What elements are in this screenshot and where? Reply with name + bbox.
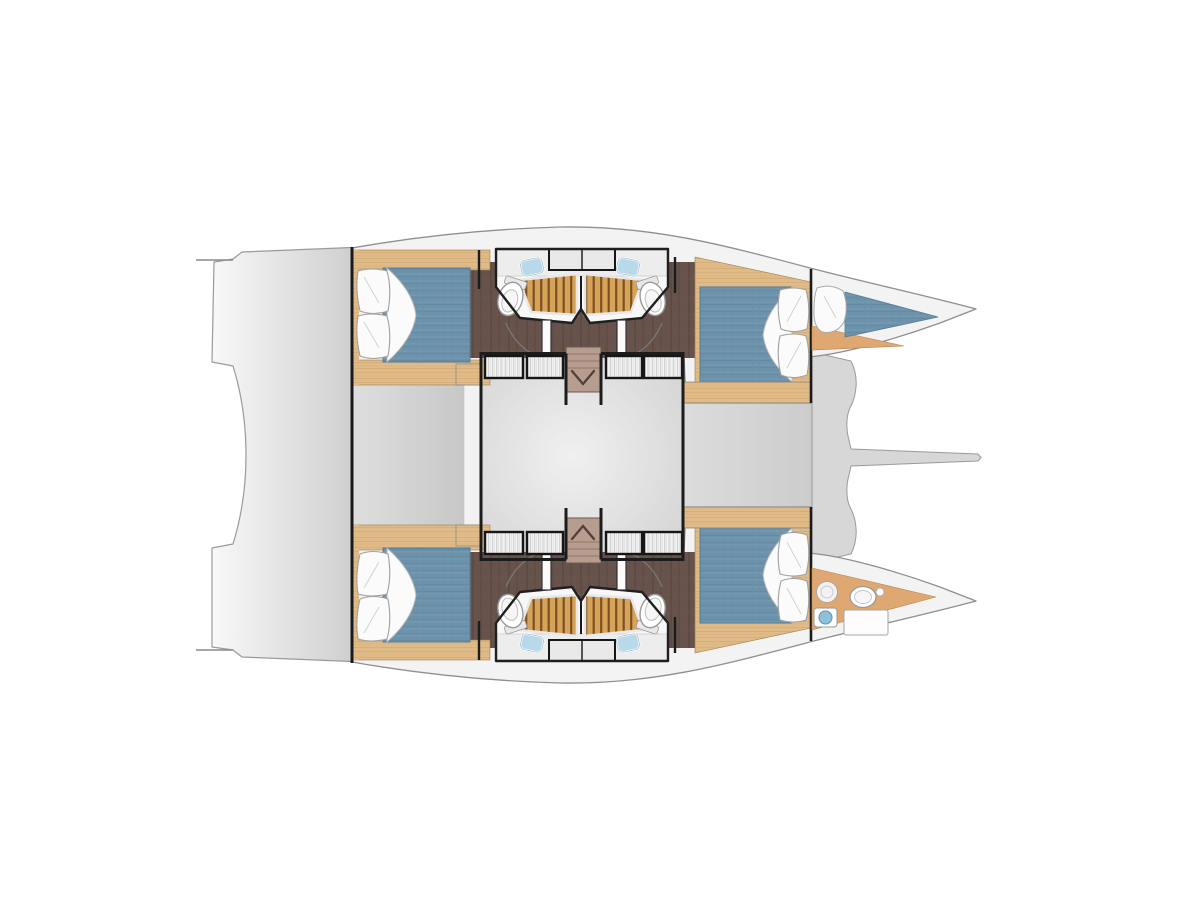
saloon-step-wood xyxy=(456,364,481,385)
aft-bed-pillow xyxy=(357,314,390,359)
crew-basin xyxy=(814,608,837,627)
aft-deck xyxy=(196,248,352,662)
starboard-hull-interior xyxy=(353,507,811,661)
aft-cabin-shelf-top xyxy=(353,250,490,270)
washbasin xyxy=(616,257,641,277)
forward-cabin xyxy=(695,257,811,402)
aft-bed-pillow xyxy=(357,269,390,314)
crossbeam-and-spar xyxy=(812,352,981,563)
companionway-stairs xyxy=(566,347,601,392)
wardrobe xyxy=(527,356,563,378)
wardrobe xyxy=(606,356,642,378)
catamaran-floor-plan-page xyxy=(0,0,1200,900)
port-hull-interior xyxy=(353,249,811,403)
forepeak-pillow xyxy=(814,286,846,332)
aft-bridgedeck xyxy=(353,384,466,526)
crew-toilet-bowl xyxy=(855,591,872,604)
aft-deck-platform xyxy=(212,248,352,662)
catamaran-floor-plan xyxy=(0,0,1200,900)
forward-bridgedeck xyxy=(683,403,813,507)
crew-washbowl xyxy=(817,582,838,603)
washbasin xyxy=(520,257,545,277)
crew-shower-tray xyxy=(844,610,888,635)
wardrobe xyxy=(644,356,682,378)
bathrooms xyxy=(479,249,675,323)
crew-toilet-flush xyxy=(876,588,884,596)
forward-walkway-wood xyxy=(683,382,811,403)
wardrobe xyxy=(485,356,523,378)
